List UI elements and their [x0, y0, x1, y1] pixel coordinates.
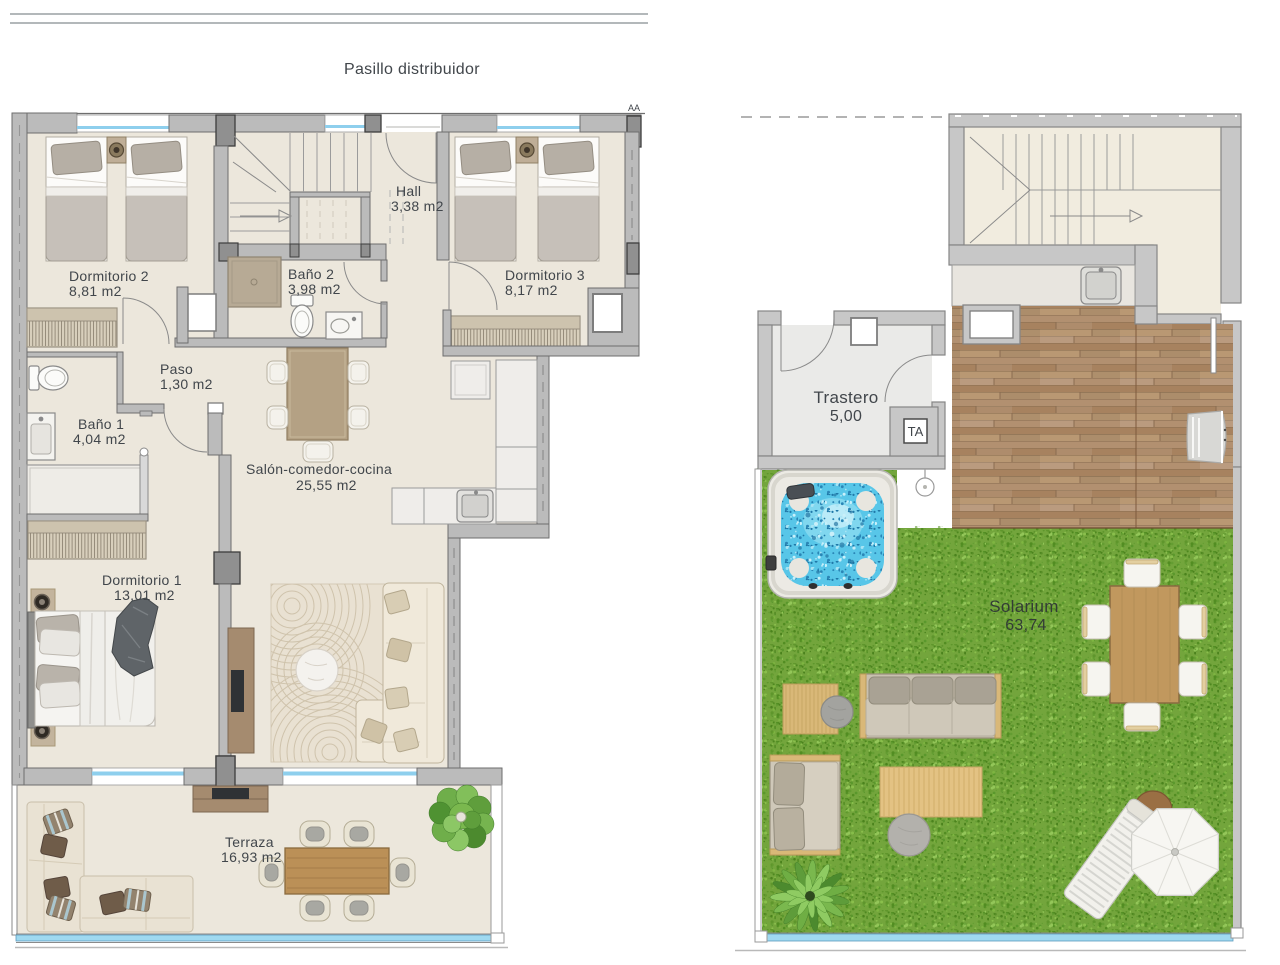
svg-text:3,38 m2: 3,38 m2 — [391, 198, 444, 214]
svg-text:13,01 m2: 13,01 m2 — [114, 587, 175, 603]
svg-text:AA: AA — [628, 103, 640, 113]
svg-text:Pasillo distribuidor: Pasillo distribuidor — [344, 61, 480, 78]
svg-text:5,00: 5,00 — [830, 408, 862, 425]
svg-text:Terraza: Terraza — [225, 834, 274, 850]
svg-text:1,30 m2: 1,30 m2 — [160, 376, 213, 392]
svg-text:Salón-comedor-cocina: Salón-comedor-cocina — [246, 461, 392, 477]
svg-text:25,55 m2: 25,55 m2 — [296, 477, 357, 493]
svg-text:8,81 m2: 8,81 m2 — [69, 283, 122, 299]
svg-text:Baño 2: Baño 2 — [288, 266, 334, 282]
svg-text:8,17 m2: 8,17 m2 — [505, 282, 558, 298]
svg-text:Solarium: Solarium — [989, 597, 1058, 616]
svg-text:3,98 m2: 3,98 m2 — [288, 281, 341, 297]
svg-text:Paso: Paso — [160, 361, 193, 377]
svg-text:63,74: 63,74 — [1005, 617, 1047, 634]
svg-text:4,04 m2: 4,04 m2 — [73, 431, 126, 447]
svg-text:Hall: Hall — [396, 183, 421, 199]
svg-text:Dormitorio 3: Dormitorio 3 — [505, 267, 585, 283]
svg-text:TA: TA — [908, 424, 924, 439]
svg-text:Dormitorio 1: Dormitorio 1 — [102, 572, 182, 588]
svg-text:Dormitorio 2: Dormitorio 2 — [69, 268, 149, 284]
svg-text:Trastero: Trastero — [813, 388, 878, 407]
svg-text:16,93 m2: 16,93 m2 — [221, 849, 282, 865]
svg-text:Baño 1: Baño 1 — [78, 416, 124, 432]
